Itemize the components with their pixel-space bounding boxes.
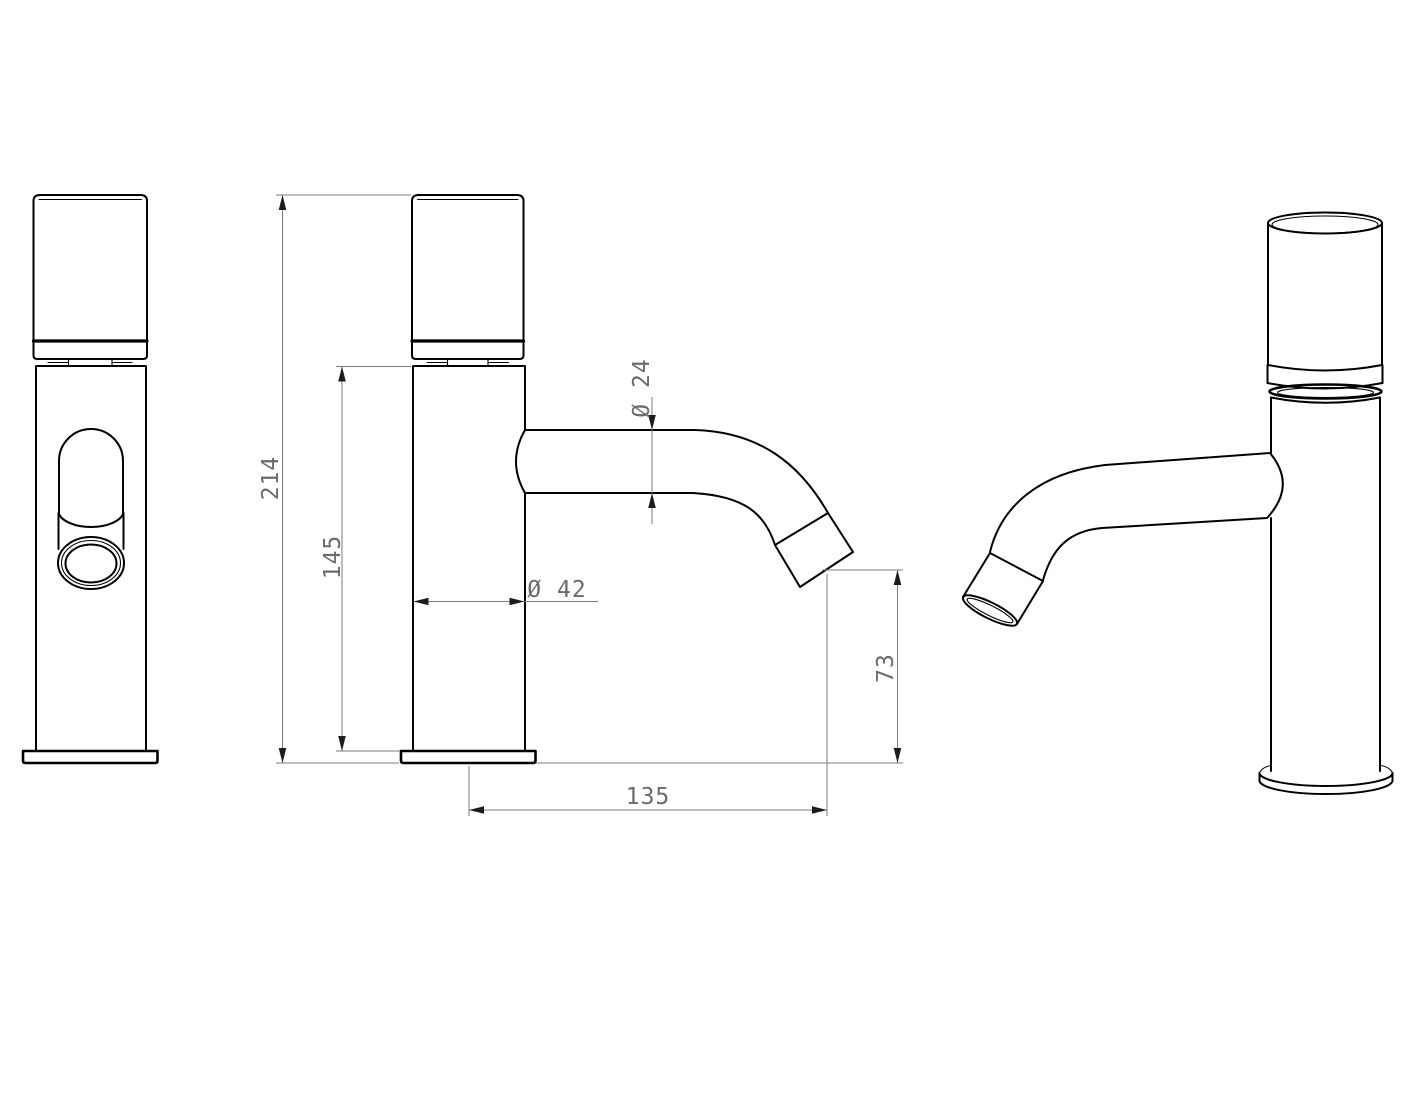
dim-total-height: 214 bbox=[258, 195, 411, 763]
handle-band bbox=[34, 341, 148, 359]
dim-label-body-height: 145 bbox=[320, 535, 346, 580]
collar-ring-outer bbox=[1270, 385, 1382, 399]
dim-body-diameter: Ø 42 bbox=[414, 577, 599, 605]
handle-cap bbox=[34, 195, 148, 341]
spout-front-capsule bbox=[59, 429, 123, 514]
technical-drawing: 214 145 Ø 24 Ø 42 73 135 bbox=[0, 0, 1420, 1095]
flange-sides bbox=[1260, 773, 1393, 781]
arrow-up bbox=[279, 195, 287, 210]
spout-end-cap-arc bbox=[1267, 453, 1283, 518]
spout-outlet-ring-mid bbox=[62, 541, 121, 586]
arrow-up bbox=[338, 367, 346, 382]
drawing-canvas: 214 145 Ø 24 Ø 42 73 135 bbox=[0, 0, 1420, 1095]
dim-spout-reach: 135 bbox=[469, 574, 827, 816]
flange-top-front-arc bbox=[1260, 773, 1393, 786]
dim-spout-diameter: Ø 24 bbox=[629, 358, 656, 524]
extension-lines bbox=[469, 574, 827, 816]
perspective-view bbox=[960, 213, 1393, 795]
front-view bbox=[23, 195, 158, 763]
handle-sides bbox=[1268, 223, 1382, 365]
arrow-left bbox=[469, 806, 484, 814]
extension-lines bbox=[276, 195, 411, 763]
spout-outlet-ring-inner bbox=[66, 545, 117, 583]
base-plate bbox=[401, 751, 536, 763]
flange-top-back-segs bbox=[1260, 766, 1393, 774]
neck bbox=[427, 359, 509, 366]
body bbox=[36, 366, 146, 751]
arrow-left bbox=[414, 598, 429, 606]
extension-lines bbox=[336, 367, 412, 752]
spout-tip-joint-line bbox=[990, 553, 1043, 581]
handle-band bbox=[412, 341, 524, 359]
dim-label-spout-diameter: Ø 24 bbox=[629, 358, 655, 417]
base-plate bbox=[23, 751, 158, 763]
extension-lines bbox=[536, 570, 903, 763]
dim-body-height: 145 bbox=[320, 367, 412, 752]
dim-label-body-diameter: Ø 42 bbox=[527, 577, 586, 603]
side-view bbox=[401, 195, 853, 763]
arrow-right bbox=[510, 598, 525, 606]
handle-cap bbox=[412, 195, 524, 341]
arrow-up bbox=[648, 493, 656, 508]
spout-tip-joint-line bbox=[775, 513, 828, 545]
spout-outlet bbox=[960, 590, 1021, 631]
arrow-down bbox=[279, 748, 287, 763]
spout-bottom-edge bbox=[525, 493, 800, 587]
arrow-down bbox=[338, 736, 346, 751]
handle-top-rim bbox=[1272, 216, 1378, 233]
spout-back-arc bbox=[516, 430, 525, 493]
spout-front-joint-arc bbox=[59, 513, 124, 527]
arrow-up bbox=[894, 570, 902, 585]
spout-top-edge bbox=[990, 453, 1270, 552]
dim-label-spout-reach: 135 bbox=[626, 784, 671, 810]
dim-label-total-height: 214 bbox=[258, 456, 284, 501]
spout-bottom-edge bbox=[1043, 518, 1267, 580]
body-sides bbox=[1271, 398, 1380, 772]
dim-outlet-height: 73 bbox=[536, 570, 903, 763]
neck bbox=[48, 359, 132, 366]
dim-label-outlet-height: 73 bbox=[873, 653, 899, 683]
arrow-right bbox=[812, 806, 827, 814]
spout-outlet-rim-outer bbox=[960, 590, 1021, 631]
handle-band-seam bbox=[1268, 365, 1382, 371]
body bbox=[413, 366, 525, 751]
spout-tip-sides bbox=[963, 553, 1043, 624]
arrow-down bbox=[894, 748, 902, 763]
spout-top-edge bbox=[525, 430, 853, 552]
